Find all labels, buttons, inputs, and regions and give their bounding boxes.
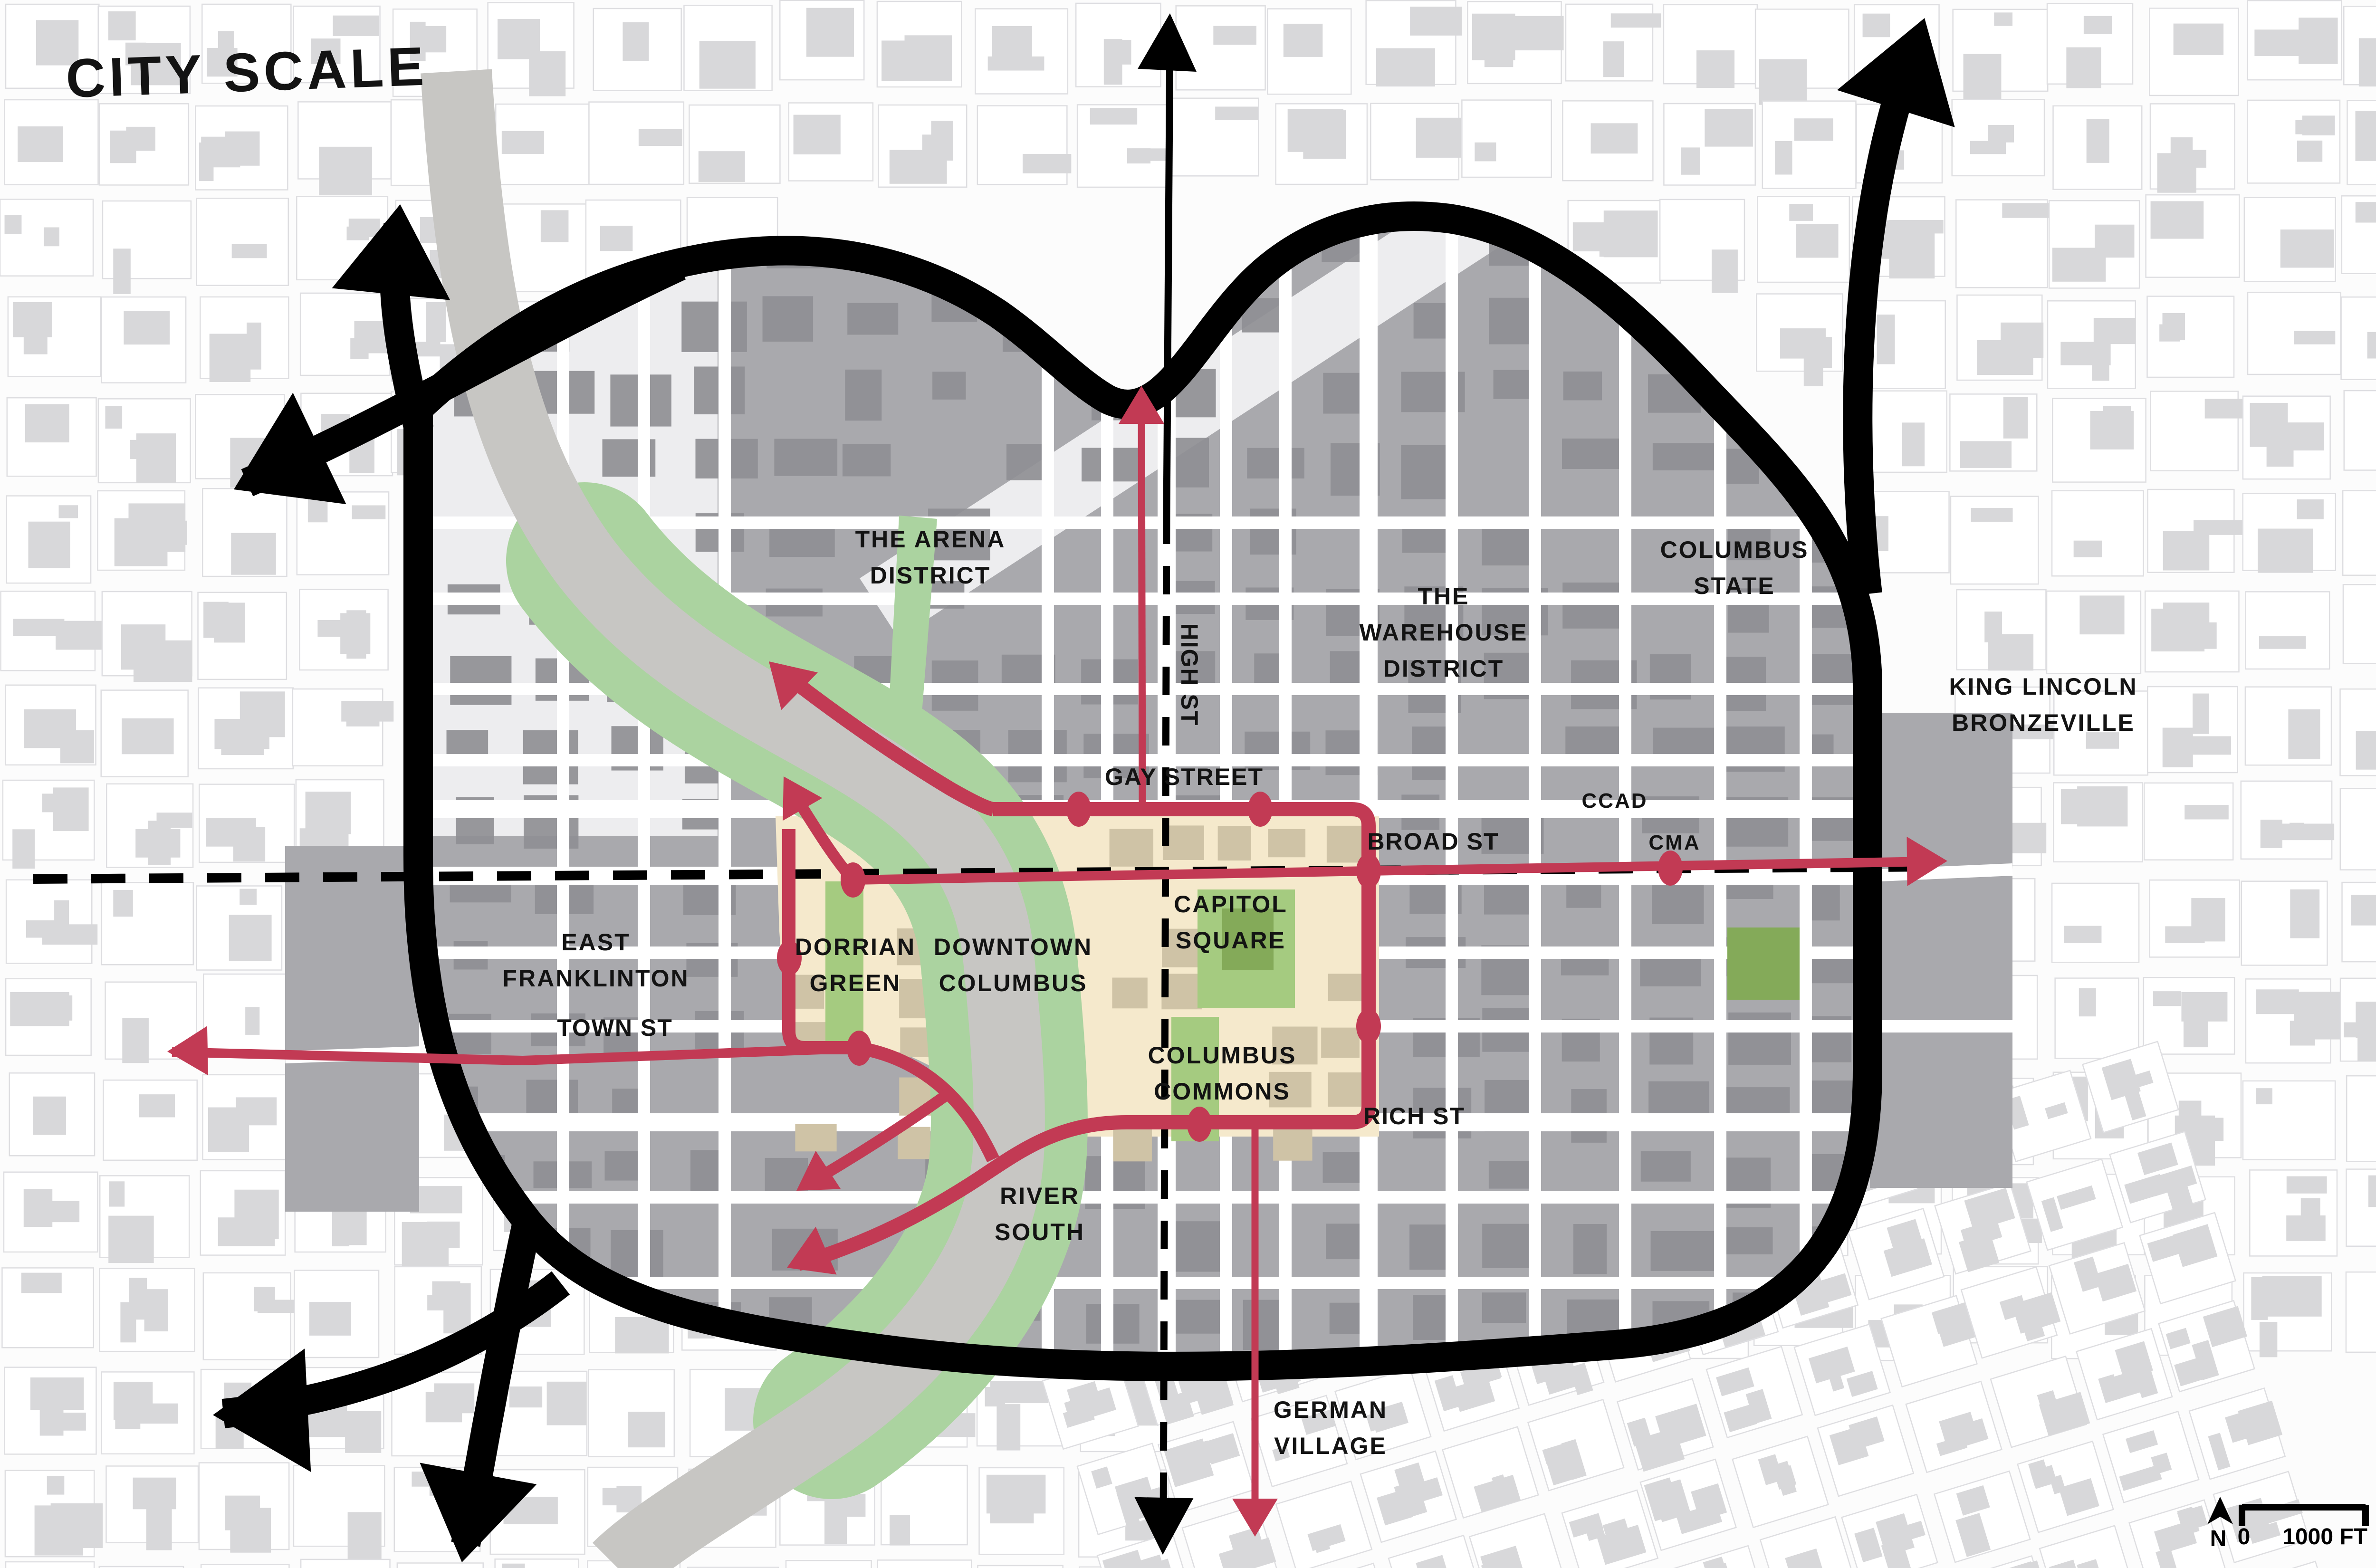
north-label: N xyxy=(2210,1526,2227,1551)
city-map-canvas: CITY SCALE THE ARENADISTRICTCOLUMBUSSTAT… xyxy=(0,0,2376,1568)
scale-end-label: 1000 FT xyxy=(2282,1524,2367,1549)
label-ccad: CCAD xyxy=(1581,789,1648,813)
label-cma: CMA xyxy=(1648,831,1700,854)
scale-start-label: 0 xyxy=(2238,1524,2251,1549)
label-high-st: HIGH ST xyxy=(1176,623,1203,727)
label-rich-st: RICH ST xyxy=(1363,1103,1465,1129)
city-scale-map-page: CITY SCALE THE ARENADISTRICTCOLUMBUSSTAT… xyxy=(0,0,2376,1568)
page-title: CITY SCALE xyxy=(65,36,429,109)
label-broad-st: BROAD ST xyxy=(1367,828,1499,855)
label-gay-street: GAY STREET xyxy=(1105,764,1264,790)
label-town-st: TOWN ST xyxy=(557,1014,673,1041)
